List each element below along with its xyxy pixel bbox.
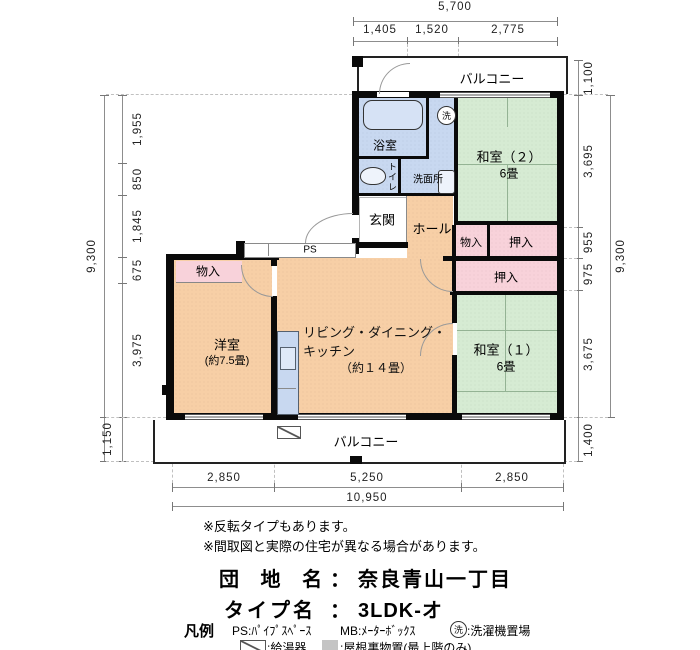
- danchi-colon: ：: [330, 563, 352, 592]
- dim-tick: [557, 37, 558, 46]
- dim-line: [104, 95, 105, 462]
- dim-tick: [118, 283, 127, 284]
- toilet-label: トイレ: [386, 162, 399, 192]
- dim-line: [610, 95, 611, 417]
- dim-tick: [118, 195, 127, 196]
- legend-heater-text: :給湯器: [267, 639, 306, 650]
- wall-ldk-washitsu1a: [452, 295, 457, 323]
- dim-tick: [118, 163, 127, 164]
- dim-tick: [461, 483, 462, 492]
- wall-closet-mid: [443, 256, 564, 261]
- toilet-icon: [360, 167, 386, 185]
- ps-niche-divider: [268, 243, 269, 256]
- legend-title: 凡例: [184, 620, 214, 641]
- extension-line: [563, 464, 564, 483]
- dim-top-seg1: 1,405: [363, 24, 397, 36]
- bath-label: 浴室: [373, 137, 397, 154]
- extension-line: [106, 461, 154, 462]
- dim-bottom-seg2: 5,250: [350, 472, 384, 484]
- extension-line: [564, 227, 577, 228]
- extension-line: [106, 417, 166, 418]
- wall-ldk-washitsu1b: [452, 355, 457, 418]
- balcony-bottom-label: バルコニー: [334, 432, 399, 451]
- wall-left-upper: [352, 91, 359, 215]
- dim-left-balcony: 1,150: [102, 422, 114, 456]
- kitchen-counter: [277, 331, 299, 415]
- wall-entrance-bottom: [352, 242, 408, 248]
- danchi-label: 団 地 名: [219, 563, 330, 592]
- dim-bottom-total: 10,950: [346, 492, 387, 504]
- washitsu2-size: 6畳: [500, 165, 519, 182]
- floorplan-page: 5,700 1,405 1,520 2,775 9,300 1,150 1,95…: [0, 0, 700, 650]
- legend-mb: MB:ﾒｰﾀｰﾎﾞｯｸｽ: [340, 622, 415, 639]
- wall-washitsu2-bottom: [454, 221, 564, 225]
- wall-left-lower: [166, 254, 174, 421]
- legend-washer-icon: 洗: [450, 621, 467, 638]
- extension-line: [564, 417, 608, 418]
- extension-line: [172, 464, 173, 483]
- oshiire-upper-label: 押入: [509, 234, 533, 251]
- dim-right-balcony-top: 1,100: [583, 61, 595, 95]
- dim-left-seg2: 850: [132, 168, 144, 190]
- closet-hall-label: 物入: [460, 234, 482, 250]
- dim-left-seg3: 1,845: [132, 209, 144, 243]
- note-2: ※間取図と実際の住宅が異なる場合があります。: [203, 536, 486, 555]
- wall-oshiire-bottom: [450, 291, 564, 295]
- dim-left-total: 9,300: [86, 239, 98, 273]
- dim-right-seg3: 975: [583, 263, 595, 285]
- ldk-label-line3: （約１４畳）: [340, 359, 412, 376]
- dim-line: [172, 487, 563, 488]
- dim-tick: [353, 37, 354, 46]
- tatami-line: [457, 391, 557, 392]
- dim-tick: [274, 483, 275, 492]
- danchi-value: 奈良青山一丁目: [358, 563, 512, 592]
- dim-tick: [574, 60, 583, 61]
- closet-west-label: 物入: [196, 263, 220, 280]
- dim-line: [172, 506, 563, 507]
- dim-tick: [118, 95, 127, 96]
- wall-closet-divider: [487, 225, 490, 257]
- washitsu1-size: 6畳: [497, 358, 516, 375]
- tatami-line: [507, 95, 508, 127]
- tatami-line: [505, 295, 506, 331]
- legend-heater-icon: [240, 640, 266, 650]
- type-label: タイプ名: [224, 594, 316, 623]
- dim-tick: [353, 17, 354, 26]
- ldk-label-line1: リビング・ダイニング・: [303, 322, 446, 341]
- wall-post: [162, 385, 168, 395]
- note-1: ※反転タイプもあります。: [203, 516, 356, 535]
- washer-icon: 洗: [437, 106, 456, 125]
- dim-line: [353, 21, 557, 22]
- extension-line: [564, 258, 577, 259]
- extension-line: [564, 94, 608, 95]
- dim-bottom-seg3: 2,850: [495, 472, 529, 484]
- legend-washer-text: :洗濯機置場: [467, 622, 530, 639]
- balcony-divider-post: [350, 456, 362, 464]
- dim-right-seg4: 3,675: [583, 337, 595, 371]
- washroom-label: 洗面所: [413, 171, 443, 186]
- dim-tick: [100, 95, 109, 96]
- washitsu1-name: 和室（１）: [473, 340, 538, 359]
- legend-ps: PS:ﾊﾟｲﾌﾟｽﾍﾟｰｽ: [232, 622, 311, 639]
- dim-right-total: 9,300: [615, 239, 627, 273]
- dim-tick: [606, 95, 615, 96]
- dim-bottom-seg1: 2,850: [207, 472, 241, 484]
- dim-top-seg2: 1,520: [415, 24, 449, 36]
- ps-niche: [244, 243, 356, 258]
- wall-bath-washroom: [426, 95, 429, 156]
- extension-line: [106, 94, 352, 95]
- water-heater-icon: [277, 426, 301, 439]
- dim-tick: [172, 483, 173, 492]
- dim-left-seg1: 1,955: [132, 112, 144, 146]
- dim-top-total: 5,700: [438, 1, 472, 13]
- legend-attic-text: :屋根裏物置(最上階のみ): [340, 639, 471, 650]
- ldk-label-line2: キッチン: [303, 341, 355, 360]
- door-arc-entrance: [305, 213, 353, 243]
- legend-attic-icon: [322, 640, 338, 650]
- dim-top-seg3: 2,775: [491, 24, 525, 36]
- dim-right-seg1: 3,695: [583, 144, 595, 178]
- dim-line: [353, 41, 557, 42]
- dim-tick: [574, 95, 583, 96]
- tatami-line: [457, 330, 557, 331]
- dim-right-balcony-bottom: 1,400: [583, 423, 595, 457]
- counter-divider: [278, 388, 296, 389]
- dim-line: [578, 60, 579, 462]
- yoshitsu-size: (約7.5畳): [205, 352, 250, 368]
- window-top: [440, 92, 550, 98]
- wall-bath-toilet: [357, 156, 429, 159]
- dim-tick: [557, 17, 558, 26]
- dim-tick: [563, 502, 564, 511]
- hall-label: ホール: [412, 219, 451, 238]
- bathtub-icon: [363, 100, 423, 130]
- balcony-top-label: バルコニー: [460, 69, 525, 88]
- dim-right-seg2: 955: [583, 231, 595, 253]
- type-colon: ：: [330, 594, 352, 623]
- oshiire-lower-label: 押入: [494, 269, 518, 286]
- type-value: 3LDK-オ: [358, 594, 443, 623]
- entrance-label: 玄関: [369, 210, 395, 229]
- dim-tick: [563, 483, 564, 492]
- wall-post: [352, 56, 363, 67]
- dim-left-seg5: 3,975: [132, 333, 144, 367]
- yoshitsu-name: 洋室: [214, 335, 240, 354]
- stove-icon: [280, 347, 296, 370]
- dim-line: [122, 95, 123, 462]
- dim-left-seg4: 675: [132, 259, 144, 281]
- dim-tick: [172, 502, 173, 511]
- washitsu2-name: 和室（２）: [476, 147, 541, 166]
- ps-label: PS: [303, 245, 316, 256]
- extension-line: [564, 290, 577, 291]
- entrance-hall-step: [406, 196, 407, 242]
- dim-tick: [118, 257, 127, 258]
